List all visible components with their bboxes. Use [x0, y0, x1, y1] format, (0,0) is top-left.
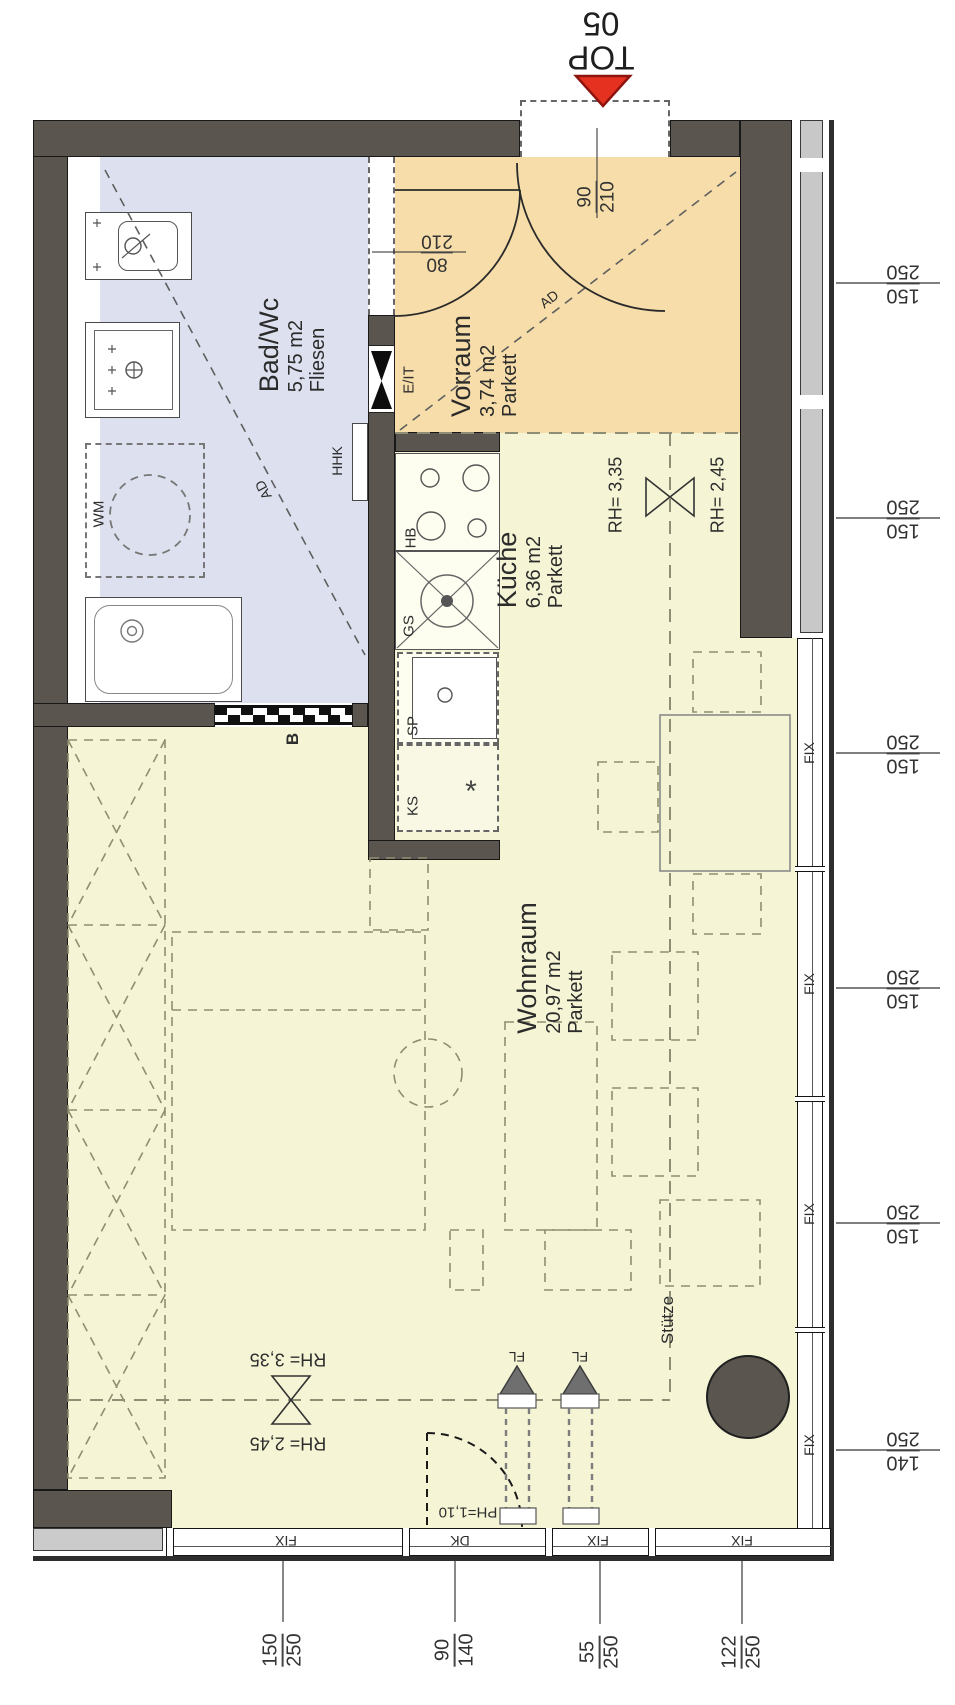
fl-markers	[498, 1366, 599, 1528]
hob-burners	[417, 465, 489, 540]
seat-5	[450, 1230, 483, 1290]
window-fix-right-3: FIX	[801, 1203, 817, 1225]
room-floor-kueche: Parkett	[545, 532, 567, 609]
tub-drain-outer	[121, 620, 143, 642]
furniture-group	[68, 652, 761, 1478]
dim-num: 150	[886, 520, 919, 540]
room-label-vorraum: Vorraum 3,74 m2 Parkett	[447, 315, 521, 417]
dishwasher-knob	[441, 595, 453, 607]
dim-right-1: 150250	[886, 261, 919, 306]
window-fix-bottom-1: FIX	[275, 1533, 297, 1549]
room-area-vorraum: 3,74 m2	[477, 315, 499, 417]
dim-den: 250	[886, 261, 919, 281]
bad-door-width: 80	[426, 254, 447, 273]
room-name-kueche: Küche	[493, 532, 523, 609]
dim-num: 122	[720, 1635, 740, 1668]
rh-boundary	[68, 433, 740, 1400]
floorplan-canvas: TOP 05 Bad/Wc 5,75 m2 Fliesen Vorraum 3,…	[0, 0, 955, 1705]
dim-leaders-bottom	[283, 1561, 742, 1624]
entry-door-size: 90210	[576, 181, 619, 213]
fridge-star: *	[465, 775, 477, 809]
sliding-door-label: B	[283, 733, 303, 745]
nightstand	[370, 858, 428, 930]
sink-drain	[438, 688, 452, 702]
hhk-label: HHK	[329, 446, 345, 476]
entry-door-width: 90	[576, 186, 595, 207]
dim-num: 150	[886, 755, 919, 775]
dim-den: 250	[744, 1635, 764, 1668]
unit-marker-line1: TOP	[567, 40, 634, 74]
sink-label: SP	[405, 716, 422, 736]
seat-3	[660, 1200, 760, 1286]
chair-top	[693, 652, 761, 712]
fl-box-1	[498, 1394, 536, 1408]
unit-marker: TOP 05	[567, 6, 634, 75]
room-area-bad: 5,75 m2	[285, 298, 307, 393]
fl-triangle-1	[500, 1366, 534, 1394]
chair-bottom	[693, 874, 761, 934]
seat-4	[545, 1230, 631, 1290]
fridge-label: KS	[405, 796, 422, 816]
dim-right-3: 150250	[886, 731, 919, 776]
ad-line-bad	[105, 170, 365, 655]
dim-num: 55	[578, 1641, 598, 1663]
seat-1	[612, 952, 698, 1040]
dim-bottom-4: 122250	[720, 1635, 765, 1668]
parapet-height-label: PH=1,10	[439, 1504, 498, 1521]
door-arcs	[372, 128, 665, 316]
bad-door-size: 80210	[421, 231, 453, 274]
eit-label: E/IT	[401, 366, 418, 394]
room-name-vorraum: Vorraum	[447, 315, 477, 417]
sofa	[505, 1022, 597, 1230]
seat-2	[612, 1088, 698, 1176]
room-name-bad: Bad/Wc	[255, 298, 285, 393]
unit-arrow-icon	[576, 76, 630, 106]
dim-num: 150	[886, 1225, 919, 1245]
wc-plus-marks	[93, 219, 101, 271]
dim-den: 250	[886, 1201, 919, 1221]
dim-right-5: 150250	[886, 1201, 919, 1246]
unit-marker-line2: 05	[567, 6, 634, 40]
fl-box-2	[561, 1394, 599, 1408]
washing-machine-drum	[110, 475, 190, 555]
room-area-wohnraum: 20,97 m2	[543, 902, 565, 1034]
dim-den: 250	[886, 1428, 919, 1448]
dim-num: 150	[886, 285, 919, 305]
chair-round	[394, 1039, 462, 1107]
rh-high-kueche: RH= 3,35	[606, 457, 627, 534]
entry-door-height: 210	[599, 181, 618, 213]
fl-label-1: FL	[509, 1349, 525, 1365]
room-floor-bad: Fliesen	[307, 298, 329, 393]
dim-den: 250	[886, 966, 919, 986]
wardrobe	[68, 740, 165, 1478]
window-fix-right-1: FIX	[801, 742, 817, 764]
room-area-kueche: 6,36 m2	[523, 532, 545, 609]
window-fix-bottom-3: FIX	[731, 1533, 753, 1549]
rh-low-wohnraum: RH= 2,45	[250, 1433, 327, 1454]
eit-panel	[371, 351, 392, 409]
dim-num: 90	[433, 1639, 453, 1661]
dim-num: 150	[886, 990, 919, 1010]
window-fix-right-4: FIX	[801, 1434, 817, 1456]
dim-den: 250	[886, 731, 919, 751]
dim-den: 140	[457, 1633, 477, 1666]
room-label-kueche: Küche 6,36 m2 Parkett	[493, 532, 567, 609]
dishwasher-label: GS	[401, 615, 418, 637]
fl-endbox-2	[563, 1508, 599, 1524]
room-name-wohnraum: Wohnraum	[513, 902, 543, 1034]
dim-num: 140	[886, 1452, 919, 1472]
hob-label: HB	[403, 528, 420, 549]
chair-left	[598, 762, 658, 832]
wc-flush	[125, 238, 141, 254]
dining-table	[660, 715, 790, 871]
dim-bottom-1: 150250	[261, 1633, 306, 1666]
dim-bottom-2: 90140	[433, 1633, 478, 1666]
room-label-bad: Bad/Wc 5,75 m2 Fliesen	[255, 298, 329, 393]
bed	[172, 932, 425, 1230]
room-label-wohnraum: Wohnraum 20,97 m2 Parkett	[513, 902, 587, 1034]
rh-low-kueche: RH= 2,45	[708, 457, 729, 534]
window-fix-bottom-2: FIX	[587, 1533, 609, 1549]
dim-leaders-right	[836, 283, 940, 1450]
dim-right-6: 140250	[886, 1428, 919, 1473]
vanity-plus-marks	[108, 345, 116, 395]
wm-label: WM	[91, 501, 108, 528]
dim-num: 150	[261, 1633, 281, 1666]
dim-den: 250	[602, 1635, 622, 1668]
bad-door-height: 210	[421, 231, 453, 250]
dim-den: 250	[285, 1633, 305, 1666]
dim-right-2: 150250	[886, 496, 919, 541]
fl-triangle-2	[563, 1366, 597, 1394]
window-dk-bottom: DK	[450, 1533, 469, 1549]
bad-door-arc	[394, 190, 520, 316]
room-floor-vorraum: Parkett	[499, 315, 521, 417]
column-label: Stütze	[658, 1296, 678, 1344]
window-fix-right-2: FIX	[801, 973, 817, 995]
dim-bottom-3: 55250	[578, 1635, 623, 1668]
rh-high-wohnraum: RH= 3,35	[250, 1349, 327, 1370]
dim-den: 250	[886, 496, 919, 516]
dim-right-4: 150250	[886, 966, 919, 1011]
fl-endbox-1	[500, 1508, 536, 1524]
room-floor-wohnraum: Parkett	[565, 902, 587, 1034]
fl-label-2: FL	[572, 1349, 588, 1365]
tub-drain-inner	[128, 627, 137, 636]
column-circle	[707, 1356, 789, 1438]
